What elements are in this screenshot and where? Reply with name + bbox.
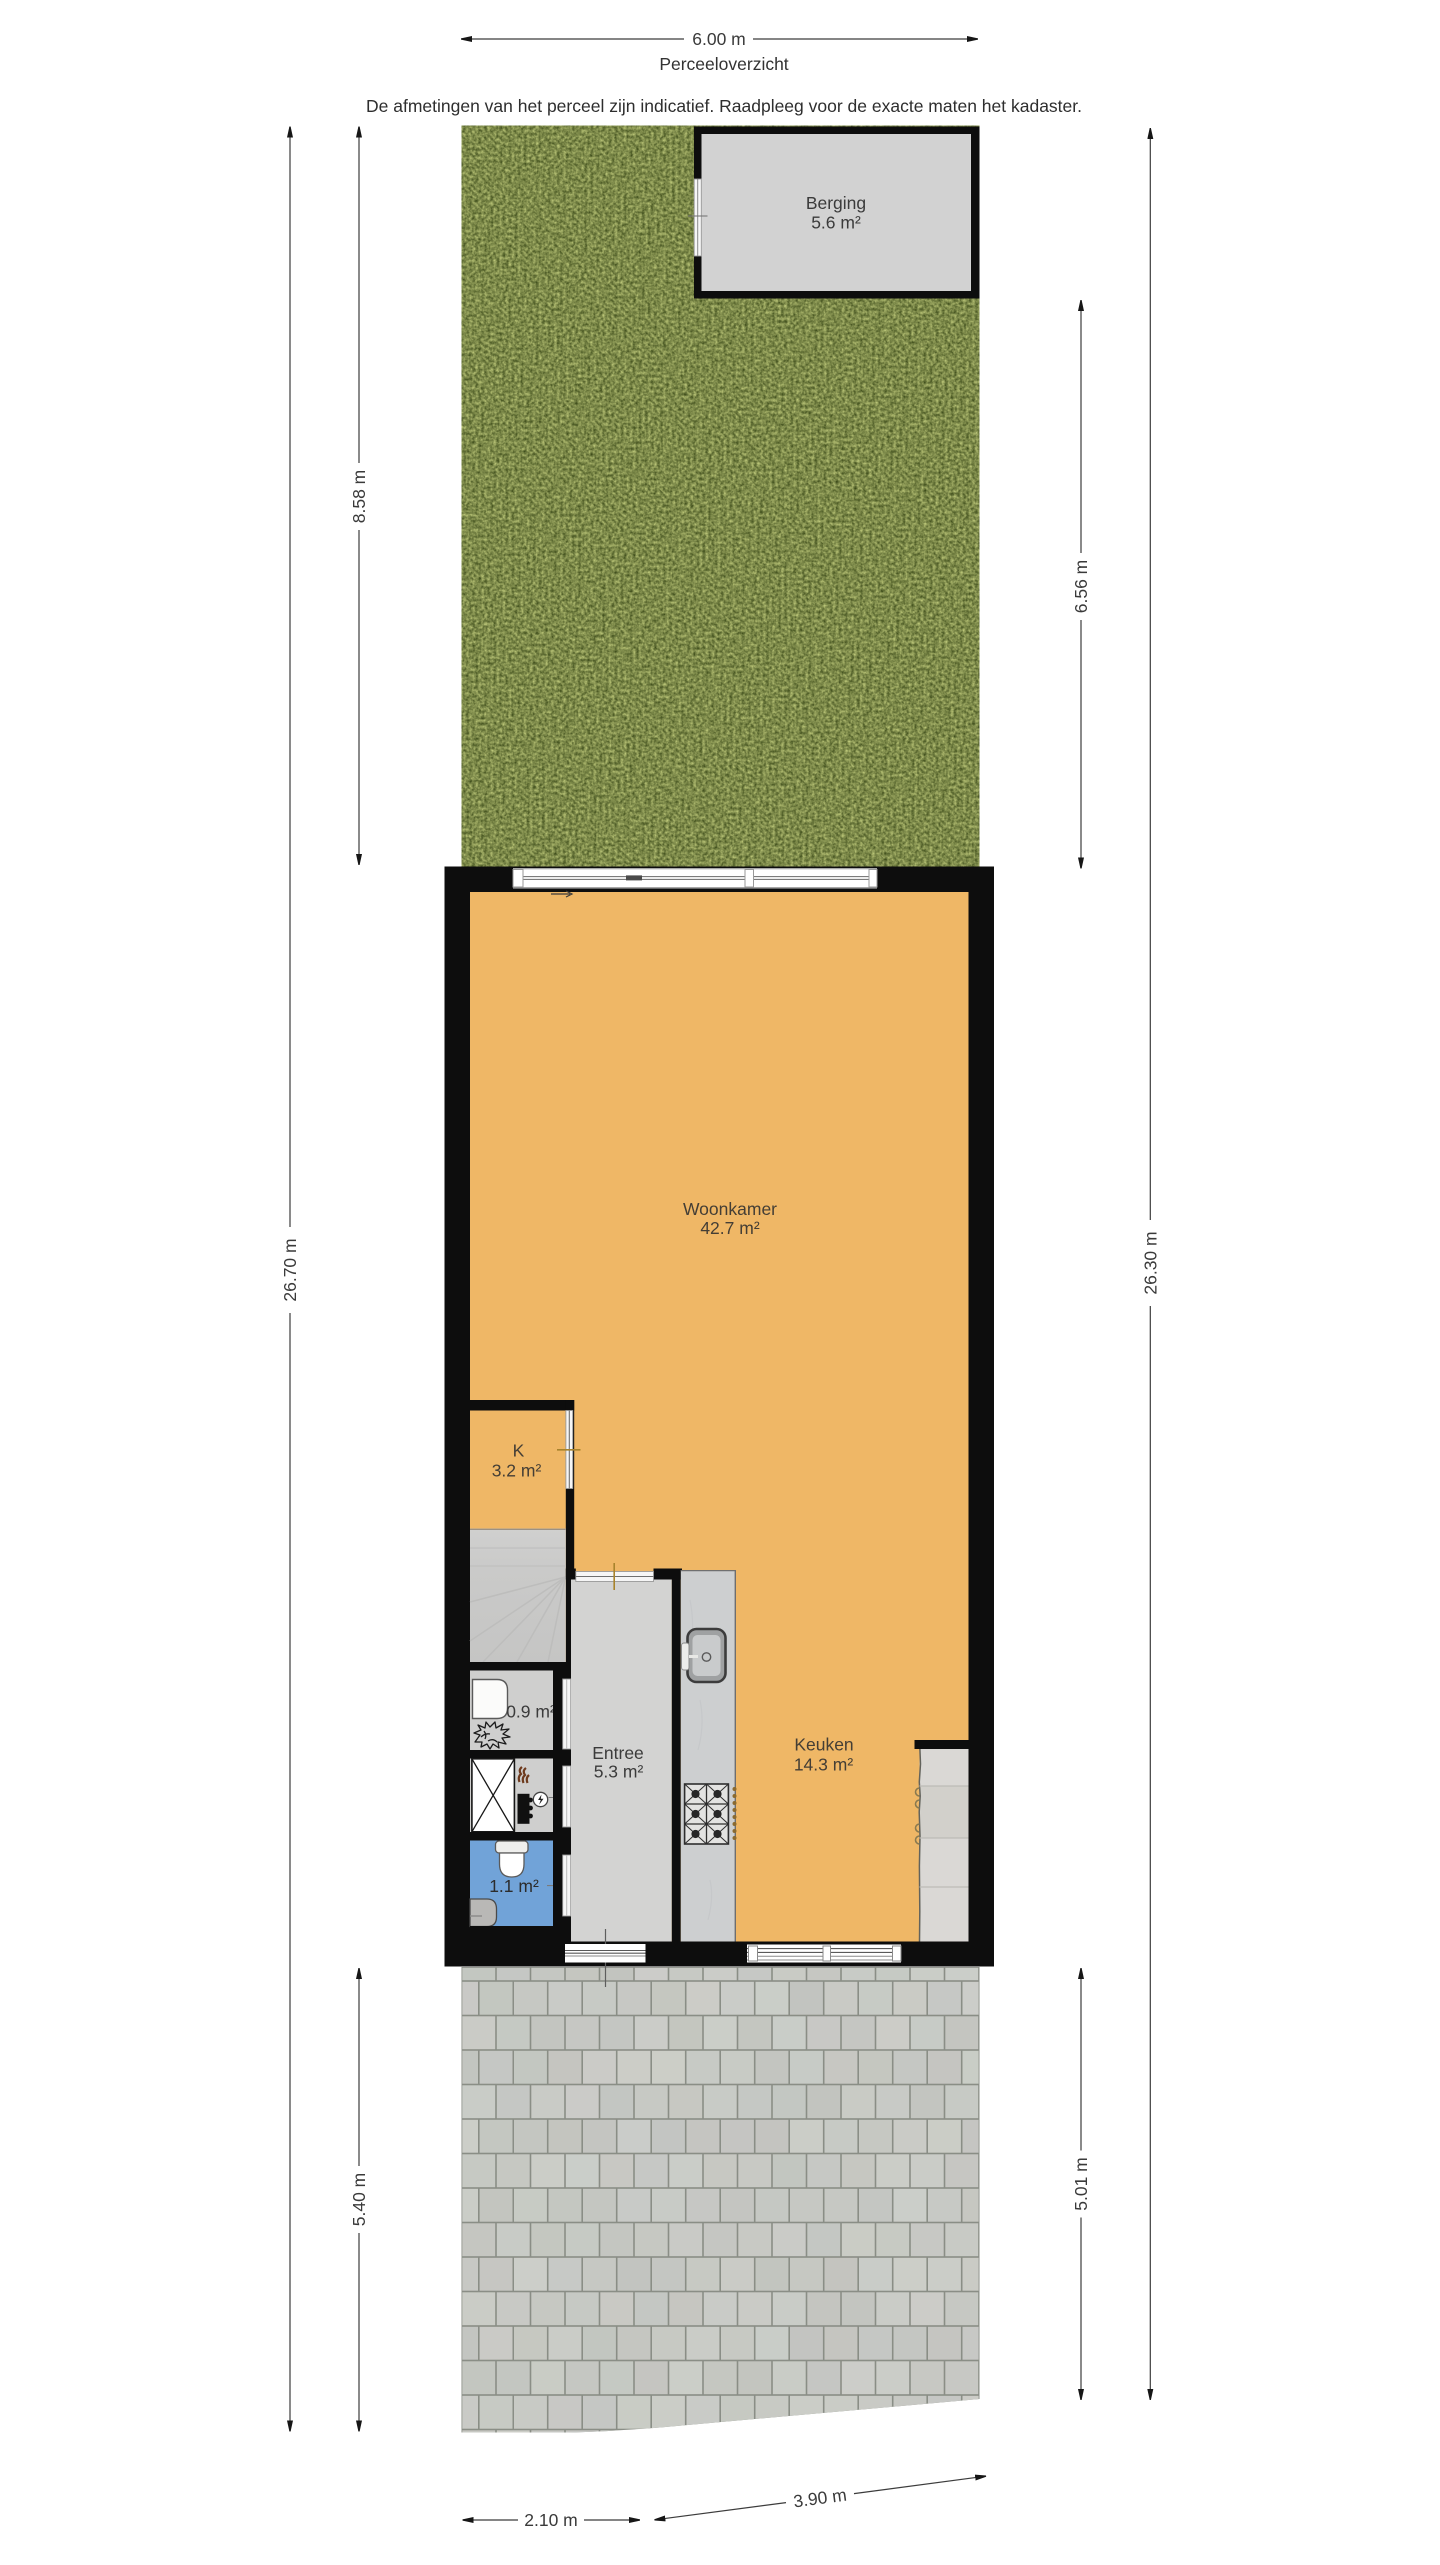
svg-text:Perceeloverzicht: Perceeloverzicht — [659, 54, 788, 74]
svg-text:6.56 m: 6.56 m — [1071, 560, 1091, 614]
svg-text:5.6 m²: 5.6 m² — [811, 213, 861, 233]
svg-text:5.01 m: 5.01 m — [1071, 2157, 1091, 2211]
svg-text:Woonkamer: Woonkamer — [683, 1199, 777, 1219]
svg-text:3.2 m²: 3.2 m² — [492, 1461, 542, 1481]
svg-text:5.40 m: 5.40 m — [349, 2173, 369, 2227]
svg-text:26.30 m: 26.30 m — [1140, 1231, 1160, 1294]
svg-text:1.1 m²: 1.1 m² — [489, 1876, 539, 1896]
svg-text:42.7 m²: 42.7 m² — [700, 1218, 759, 1238]
svg-text:Entree: Entree — [592, 1743, 644, 1763]
svg-text:2.10 m: 2.10 m — [524, 2510, 578, 2530]
svg-text:Berging: Berging — [806, 193, 866, 213]
svg-text:De afmetingen van het perceel: De afmetingen van het perceel zijn indic… — [366, 96, 1082, 116]
svg-text:26.70 m: 26.70 m — [280, 1238, 300, 1301]
svg-text:14.3 m²: 14.3 m² — [794, 1755, 853, 1775]
svg-text:0.9 m²: 0.9 m² — [506, 1702, 556, 1722]
svg-text:K: K — [513, 1441, 525, 1461]
svg-text:8.58 m: 8.58 m — [349, 470, 369, 524]
svg-text:6.00 m: 6.00 m — [692, 29, 746, 49]
svg-text:5.3 m²: 5.3 m² — [594, 1762, 644, 1782]
svg-text:Keuken: Keuken — [794, 1735, 853, 1755]
